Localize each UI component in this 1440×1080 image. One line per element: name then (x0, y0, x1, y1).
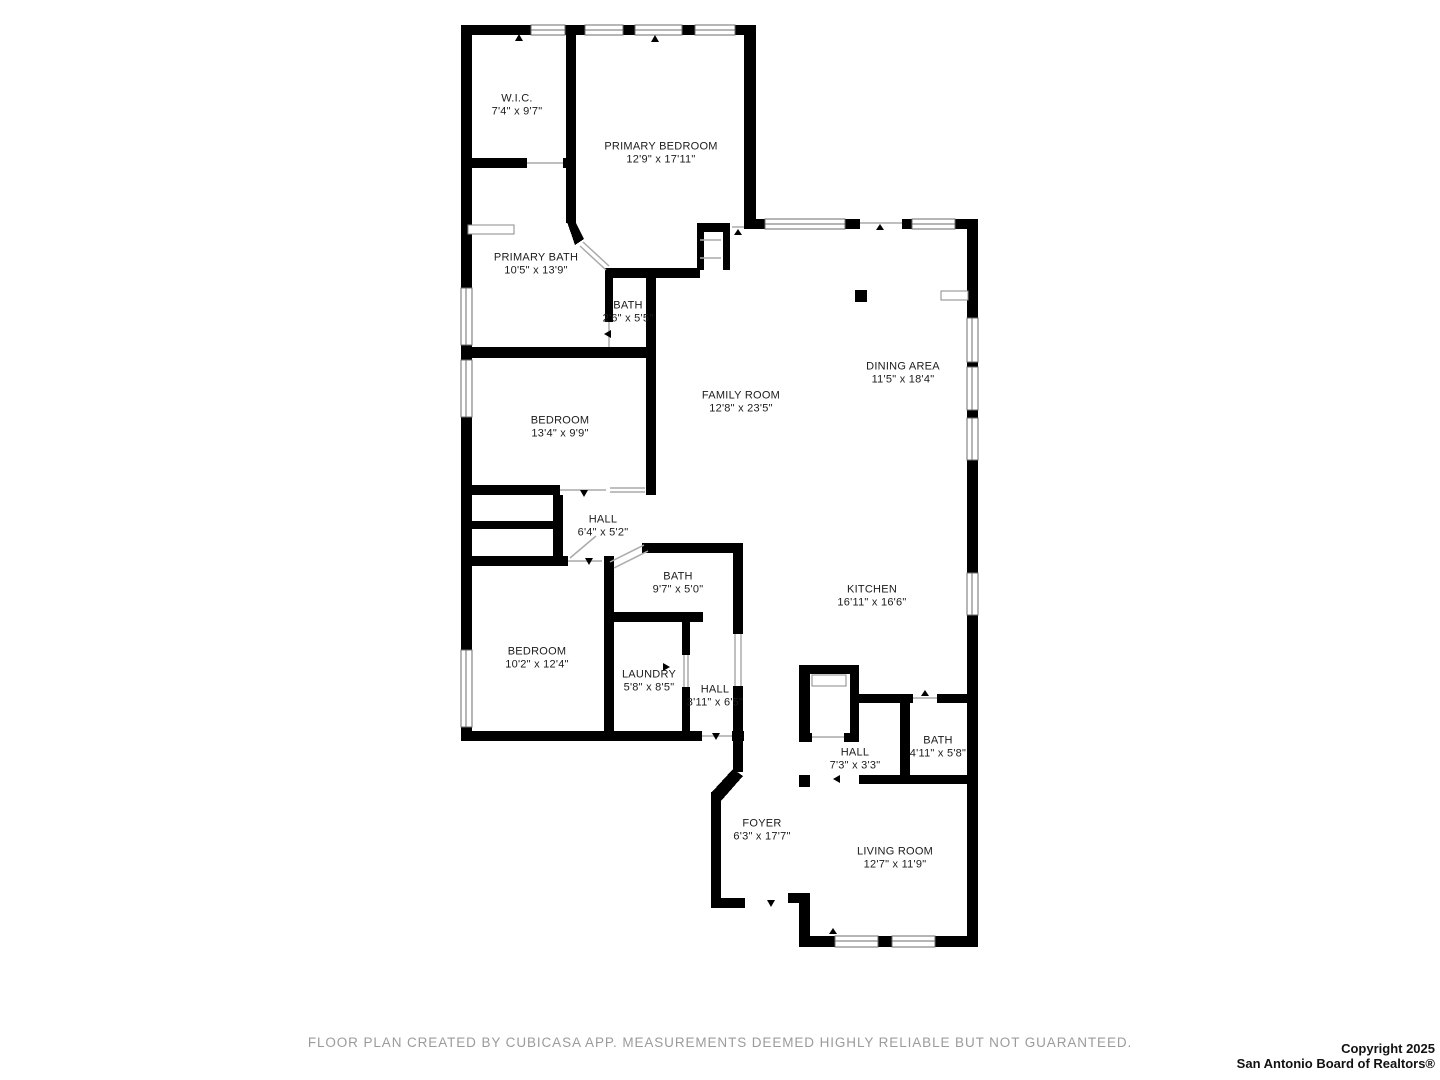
room-dims: 4'11" x 5'8" (910, 747, 966, 760)
copyright-line2: San Antonio Board of Realtors® (1237, 1056, 1435, 1071)
room-label-primary-bedroom: PRIMARY BEDROOM 12'9" x 17'11" (604, 141, 717, 166)
room-name: KITCHEN (837, 584, 906, 597)
room-dims: 11'5" x 18'4" (866, 373, 940, 386)
room-label-bath-2: BATH 9'7" x 5'0" (653, 571, 704, 596)
room-name: DINING AREA (866, 361, 940, 374)
room-label-kitchen: KITCHEN 16'11" x 16'6" (837, 584, 906, 609)
fixtures-group (468, 225, 968, 686)
room-name: FAMILY ROOM (702, 390, 780, 403)
wall-post (799, 775, 810, 787)
room-name: LAUNDRY (622, 669, 676, 682)
room-label-laundry: LAUNDRY 5'8" x 8'5" (622, 669, 676, 694)
room-name: HALL (830, 747, 881, 760)
room-name: BEDROOM (505, 646, 569, 659)
copyright-notice: Copyright 2025 San Antonio Board of Real… (1237, 1041, 1435, 1071)
disclaimer-text: FLOOR PLAN CREATED BY CUBICASA APP. MEAS… (308, 1035, 1132, 1050)
room-dims: 5'8" x 8'5" (622, 681, 676, 694)
room-dims: 10'2" x 12'4" (505, 658, 569, 671)
room-label-bath-3: BATH 4'11" x 5'8" (910, 735, 966, 760)
room-name: W.I.C. (492, 93, 543, 106)
room-label-wic: W.I.C. 7'4" x 9'7" (492, 93, 543, 118)
room-name: BATH (910, 735, 966, 748)
room-label-family-room: FAMILY ROOM 12'8" x 23'5" (702, 390, 780, 415)
room-dims: 12'7" x 11'9" (857, 858, 933, 871)
copyright-line1: Copyright 2025 (1237, 1041, 1435, 1056)
room-name: FOYER (733, 818, 790, 831)
room-label-hall-1: HALL 6'4" x 5'2" (578, 514, 629, 539)
room-label-primary-bath: PRIMARY BATH 10'5" x 13'9" (494, 252, 578, 277)
room-dims: 10'5" x 13'9" (494, 264, 578, 277)
room-name: BATH (653, 571, 704, 584)
kitchen-counter (941, 291, 968, 300)
room-dims: 9'7" x 5'0" (653, 583, 704, 596)
room-dims: 12'9" x 17'11" (604, 153, 717, 166)
room-dims: 2'6" x 5'5" (603, 312, 654, 325)
room-name: LIVING ROOM (857, 846, 933, 859)
room-name: HALL (578, 514, 629, 527)
pantry-shelf (812, 675, 846, 686)
vanity-counter (468, 225, 514, 234)
room-name: BATH (603, 300, 654, 313)
support-column (855, 290, 867, 302)
openings-group (527, 163, 937, 737)
floor-plan-page: W.I.C. 7'4" x 9'7" PRIMARY BEDROOM 12'9"… (0, 0, 1440, 1080)
room-dims: 3'11" x 6'5" (687, 696, 743, 709)
room-label-hall-3: HALL 7'3" x 3'3" (830, 747, 881, 772)
room-dims: 12'8" x 23'5" (702, 402, 780, 415)
room-dims: 13'4" x 9'9" (531, 427, 590, 440)
room-label-foyer: FOYER 6'3" x 17'7" (733, 818, 790, 843)
room-dims: 16'11" x 16'6" (837, 596, 906, 609)
room-label-bedroom-2: BEDROOM 10'2" x 12'4" (505, 646, 569, 671)
room-label-bedroom-1: BEDROOM 13'4" x 9'9" (531, 415, 590, 440)
room-name: PRIMARY BATH (494, 252, 578, 265)
floor-plan-drawing (0, 0, 1440, 1080)
room-dims: 6'3" x 17'7" (733, 830, 790, 843)
room-dims: 7'3" x 3'3" (830, 759, 881, 772)
room-name: HALL (687, 684, 743, 697)
room-label-hall-2: HALL 3'11" x 6'5" (687, 684, 743, 709)
room-dims: 7'4" x 9'7" (492, 105, 543, 118)
room-label-dining-area: DINING AREA 11'5" x 18'4" (866, 361, 940, 386)
room-name: PRIMARY BEDROOM (604, 141, 717, 154)
room-dims: 6'4" x 5'2" (578, 526, 629, 539)
room-label-bath-small: BATH 2'6" x 5'5" (603, 300, 654, 325)
room-label-living-room: LIVING ROOM 12'7" x 11'9" (857, 846, 933, 871)
room-name: BEDROOM (531, 415, 590, 428)
